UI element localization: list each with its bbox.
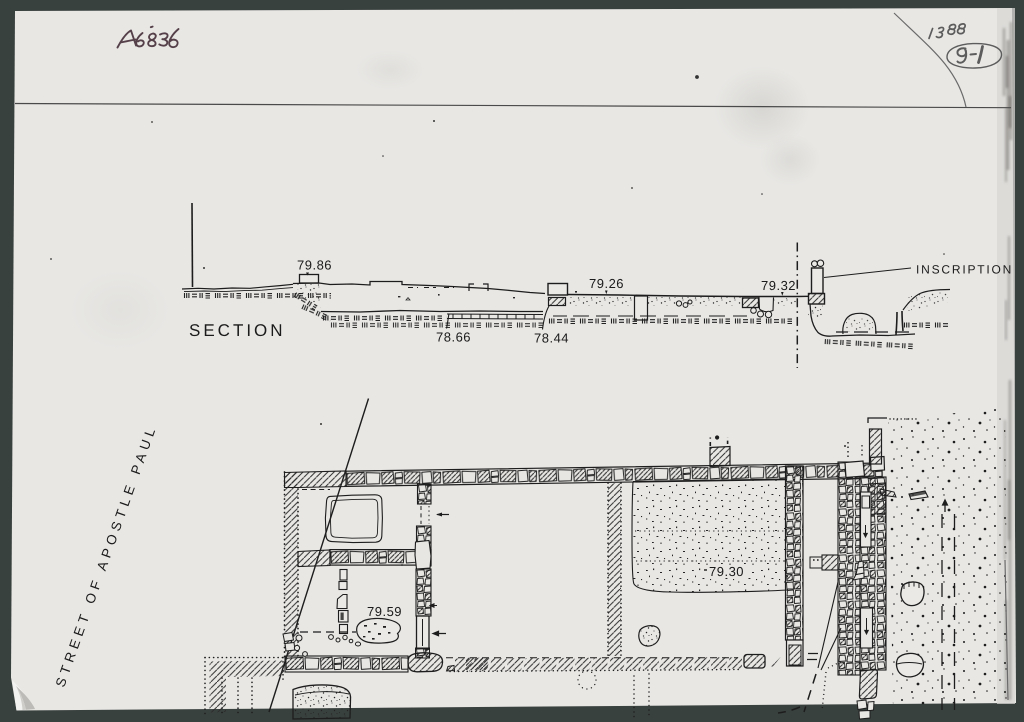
svg-text:79.59: 79.59 [367, 604, 402, 619]
svg-text:79.30: 79.30 [709, 564, 744, 579]
svg-text:SECTION: SECTION [189, 321, 286, 340]
svg-text:79.86: 79.86 [297, 258, 332, 273]
svg-text:INSCRIPTION: INSCRIPTION [916, 263, 1013, 277]
svg-text:79.26: 79.26 [589, 276, 624, 291]
svg-text:79.32: 79.32 [761, 278, 796, 293]
svg-text:78.44: 78.44 [534, 331, 569, 346]
svg-text:78.66: 78.66 [436, 330, 471, 345]
